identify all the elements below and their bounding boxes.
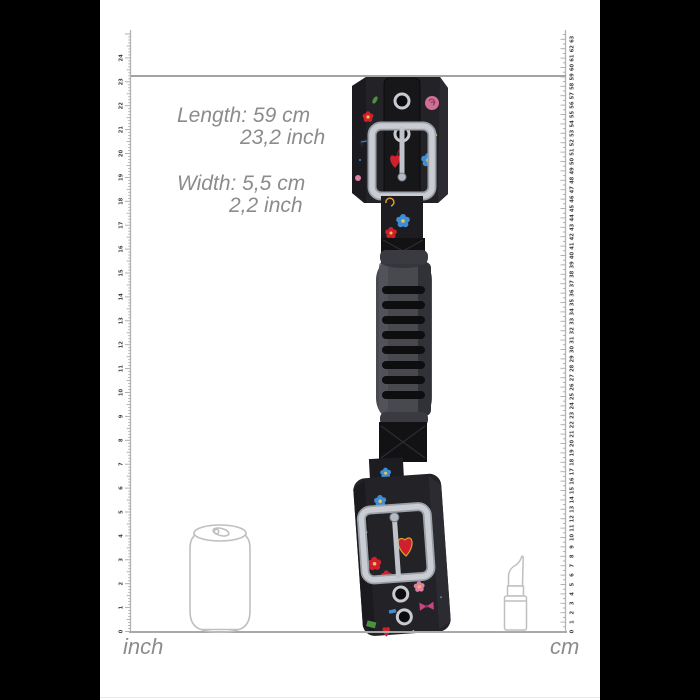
svg-text:58: 58 bbox=[570, 82, 576, 90]
svg-text:49: 49 bbox=[570, 167, 576, 175]
svg-text:5: 5 bbox=[570, 582, 576, 586]
svg-text:17: 17 bbox=[118, 221, 124, 229]
width-cm-label: Width: 5,5 cm bbox=[177, 173, 305, 195]
length-cm-label: Length: 59 cm bbox=[177, 105, 310, 127]
svg-text:41: 41 bbox=[570, 242, 576, 250]
reference-objects bbox=[0, 0, 700, 700]
can-pull-tab bbox=[212, 527, 229, 538]
svg-text:61: 61 bbox=[570, 54, 576, 62]
lipstick-bullet bbox=[509, 556, 524, 586]
measurement-rulers: 0123456789101112131415161718192021222324… bbox=[0, 0, 700, 700]
left-black-panel bbox=[0, 0, 100, 700]
svg-text:29: 29 bbox=[570, 355, 576, 363]
svg-text:24: 24 bbox=[118, 54, 124, 62]
svg-text:11: 11 bbox=[118, 365, 124, 373]
svg-text:10: 10 bbox=[118, 389, 124, 397]
svg-text:10: 10 bbox=[570, 534, 576, 542]
product-measurement-image: 0123456789101112131415161718192021222324… bbox=[0, 0, 700, 700]
svg-text:21: 21 bbox=[570, 430, 576, 438]
svg-text:6: 6 bbox=[570, 573, 576, 577]
bottom-cuff bbox=[353, 473, 452, 638]
svg-text:16: 16 bbox=[570, 477, 576, 485]
right-ruler-unit-label: cm bbox=[550, 634, 579, 660]
svg-text:44: 44 bbox=[570, 214, 576, 222]
svg-text:15: 15 bbox=[118, 269, 124, 277]
svg-text:2: 2 bbox=[570, 611, 576, 615]
svg-text:15: 15 bbox=[570, 487, 576, 495]
floral-print bbox=[357, 491, 444, 638]
svg-text:38: 38 bbox=[570, 270, 576, 278]
svg-text:51: 51 bbox=[570, 148, 576, 156]
svg-text:24: 24 bbox=[570, 402, 576, 410]
svg-text:18: 18 bbox=[118, 197, 124, 205]
svg-text:55: 55 bbox=[570, 111, 576, 119]
svg-text:3: 3 bbox=[570, 601, 576, 605]
svg-text:6: 6 bbox=[118, 486, 124, 490]
svg-text:56: 56 bbox=[570, 101, 576, 109]
svg-text:39: 39 bbox=[570, 261, 576, 269]
length-inch-label: 23,2 inch bbox=[240, 127, 325, 149]
svg-text:47: 47 bbox=[570, 186, 576, 194]
svg-text:11: 11 bbox=[570, 524, 576, 532]
svg-text:8: 8 bbox=[118, 438, 124, 442]
svg-text:1: 1 bbox=[118, 605, 124, 609]
svg-text:13: 13 bbox=[570, 505, 576, 513]
soda-can-illustration bbox=[190, 525, 250, 632]
svg-text:18: 18 bbox=[570, 458, 576, 466]
lower-strap bbox=[369, 457, 406, 517]
svg-text:22: 22 bbox=[570, 421, 576, 429]
grommet bbox=[395, 94, 409, 108]
svg-text:32: 32 bbox=[570, 327, 576, 335]
svg-text:2: 2 bbox=[118, 582, 124, 586]
svg-text:28: 28 bbox=[570, 364, 576, 372]
floral-print bbox=[355, 88, 439, 182]
top-strap bbox=[384, 78, 420, 212]
svg-text:9: 9 bbox=[118, 414, 124, 418]
image-bottom-edge bbox=[100, 697, 600, 698]
length-guide-line bbox=[131, 75, 566, 77]
svg-text:42: 42 bbox=[570, 233, 576, 241]
svg-text:13: 13 bbox=[118, 317, 124, 325]
svg-text:14: 14 bbox=[570, 496, 576, 504]
svg-text:45: 45 bbox=[570, 205, 576, 213]
right-black-panel bbox=[600, 0, 700, 700]
svg-text:20: 20 bbox=[570, 440, 576, 448]
svg-text:48: 48 bbox=[570, 176, 576, 184]
svg-text:35: 35 bbox=[570, 299, 576, 307]
svg-text:9: 9 bbox=[570, 545, 576, 549]
svg-text:60: 60 bbox=[570, 64, 576, 72]
svg-text:34: 34 bbox=[570, 308, 576, 316]
svg-text:0: 0 bbox=[570, 629, 576, 633]
svg-text:30: 30 bbox=[570, 346, 576, 354]
svg-text:36: 36 bbox=[570, 289, 576, 297]
svg-text:31: 31 bbox=[570, 336, 576, 344]
svg-text:62: 62 bbox=[570, 45, 576, 53]
svg-text:23: 23 bbox=[118, 78, 124, 86]
svg-text:12: 12 bbox=[118, 341, 124, 349]
svg-text:25: 25 bbox=[570, 393, 576, 401]
svg-text:1: 1 bbox=[570, 620, 576, 624]
svg-text:20: 20 bbox=[118, 150, 124, 158]
baseline bbox=[129, 631, 567, 633]
bow-motif bbox=[419, 602, 434, 611]
grommet bbox=[395, 127, 409, 141]
grommet bbox=[393, 587, 408, 602]
top-cuff bbox=[352, 77, 448, 203]
grommet bbox=[397, 609, 412, 624]
svg-text:12: 12 bbox=[570, 515, 576, 523]
mid-strap bbox=[381, 196, 423, 244]
svg-text:37: 37 bbox=[570, 280, 576, 288]
svg-text:17: 17 bbox=[570, 468, 576, 476]
svg-text:52: 52 bbox=[570, 139, 576, 147]
svg-text:14: 14 bbox=[118, 293, 124, 301]
svg-text:19: 19 bbox=[118, 173, 124, 181]
svg-text:43: 43 bbox=[570, 223, 576, 231]
svg-text:57: 57 bbox=[570, 92, 576, 100]
svg-text:63: 63 bbox=[570, 35, 576, 43]
svg-text:27: 27 bbox=[570, 374, 576, 382]
bottom-buckle bbox=[361, 506, 432, 580]
svg-text:21: 21 bbox=[118, 126, 124, 134]
handle-assembly bbox=[376, 238, 432, 462]
svg-text:50: 50 bbox=[570, 158, 576, 166]
svg-text:4: 4 bbox=[118, 534, 124, 538]
lipstick-illustration bbox=[505, 556, 527, 630]
width-inch-label: 2,2 inch bbox=[229, 195, 303, 217]
svg-text:59: 59 bbox=[570, 73, 576, 81]
svg-text:53: 53 bbox=[570, 129, 576, 137]
svg-text:7: 7 bbox=[570, 564, 576, 568]
product-illustration bbox=[0, 0, 700, 700]
svg-text:7: 7 bbox=[118, 462, 124, 466]
svg-text:16: 16 bbox=[118, 245, 124, 253]
svg-text:33: 33 bbox=[570, 317, 576, 325]
svg-text:8: 8 bbox=[570, 554, 576, 558]
svg-text:46: 46 bbox=[570, 195, 576, 203]
svg-text:0: 0 bbox=[118, 629, 124, 633]
svg-text:54: 54 bbox=[570, 120, 576, 128]
svg-text:3: 3 bbox=[118, 558, 124, 562]
svg-text:5: 5 bbox=[118, 510, 124, 514]
grip-ribs bbox=[382, 286, 425, 399]
svg-text:40: 40 bbox=[570, 252, 576, 260]
svg-text:23: 23 bbox=[570, 411, 576, 419]
top-buckle bbox=[372, 126, 432, 196]
svg-text:19: 19 bbox=[570, 449, 576, 457]
svg-text:26: 26 bbox=[570, 383, 576, 391]
svg-text:4: 4 bbox=[570, 592, 576, 596]
left-ruler-unit-label: inch bbox=[123, 634, 163, 660]
svg-text:22: 22 bbox=[118, 102, 124, 110]
